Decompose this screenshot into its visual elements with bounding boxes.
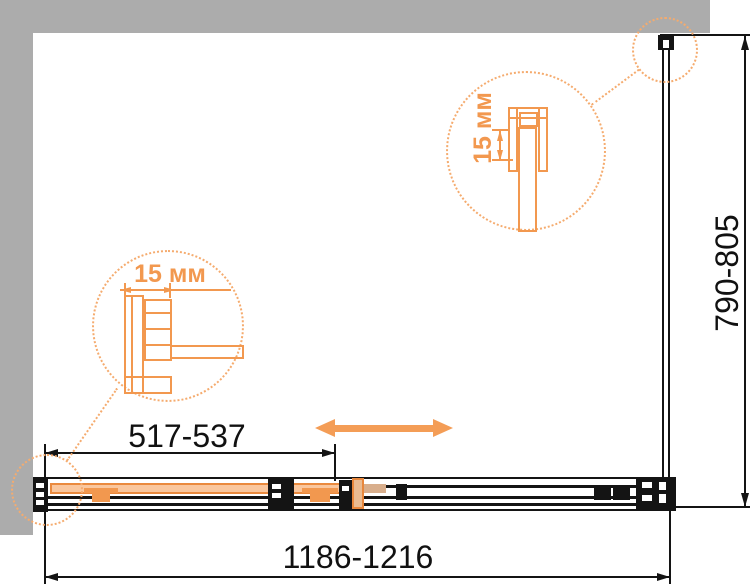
fixed-panel-clip-mid-foot (310, 493, 330, 502)
detail-right-profile-inner (519, 112, 538, 127)
detail-left-glass-panel (170, 345, 244, 359)
detail-left-profile-base (124, 376, 172, 394)
right-end-slot (659, 494, 666, 503)
right-end-slot (659, 482, 666, 490)
handle-strip-tan (364, 484, 386, 493)
detail-right-glass-panel (518, 127, 537, 232)
fixed-panel-clip-left-foot (92, 493, 110, 502)
detail-right-profile-bar-right (538, 107, 548, 172)
slide-arrow-right-head-icon (433, 419, 453, 437)
dimension-drawing: 790-805 517-537 1186-1216 (0, 0, 750, 584)
width-arrow-right-icon (657, 573, 670, 581)
detail-left-dim-line (120, 289, 231, 291)
detail-left-ext-tick (169, 283, 171, 298)
wall-left (0, 0, 33, 535)
right-end-slot (642, 495, 652, 501)
detail-circle-left-small (11, 454, 83, 526)
rail-block-right-1 (594, 486, 611, 500)
center-connector-slot (272, 484, 281, 489)
height-arrow-up-icon (741, 36, 749, 50)
rail-block-small (396, 484, 407, 500)
mid-roller-block (339, 480, 353, 509)
mid-roller-slot (342, 486, 349, 491)
detail-leader-left (66, 388, 118, 461)
wall-top (0, 0, 710, 33)
detail-left-bracket-divider (146, 328, 172, 330)
fixed-arrow-right-icon (322, 449, 335, 457)
right-profile-line-outer (662, 38, 664, 508)
detail-right-arrow-up-icon (497, 130, 503, 141)
rail-bottom-line (33, 509, 676, 511)
height-ext-line-bottom (672, 506, 750, 508)
height-arrow-down-icon (741, 493, 749, 507)
roller-bracket-orange (352, 478, 364, 509)
width-dimension-label: 1186-1216 (258, 540, 458, 574)
right-end-slot (642, 482, 652, 488)
slide-direction-arrow-icon (334, 425, 434, 432)
slide-arrow-left-head-icon (315, 419, 335, 437)
detail-right-ext-tick (492, 129, 509, 131)
detail-circle-top-right-small (632, 17, 698, 83)
width-arrow-left-icon (45, 573, 58, 581)
detail-leader-top-right (591, 69, 640, 106)
right-profile-line-inner (668, 38, 670, 508)
height-dimension-label: 790-805 (710, 213, 744, 333)
detail-left-bracket-divider (146, 312, 172, 314)
detail-right-profile-bar-left (508, 107, 518, 172)
detail-left-bracket-divider (146, 344, 172, 346)
rail-block-right-2 (613, 486, 630, 500)
fixed-dimension-label: 517-537 (117, 419, 257, 453)
detail-top-right-label: 15 мм (470, 88, 496, 168)
center-connector-slot (272, 493, 281, 498)
width-dimension-line (45, 576, 670, 578)
detail-left-profile-bracket (144, 299, 172, 361)
